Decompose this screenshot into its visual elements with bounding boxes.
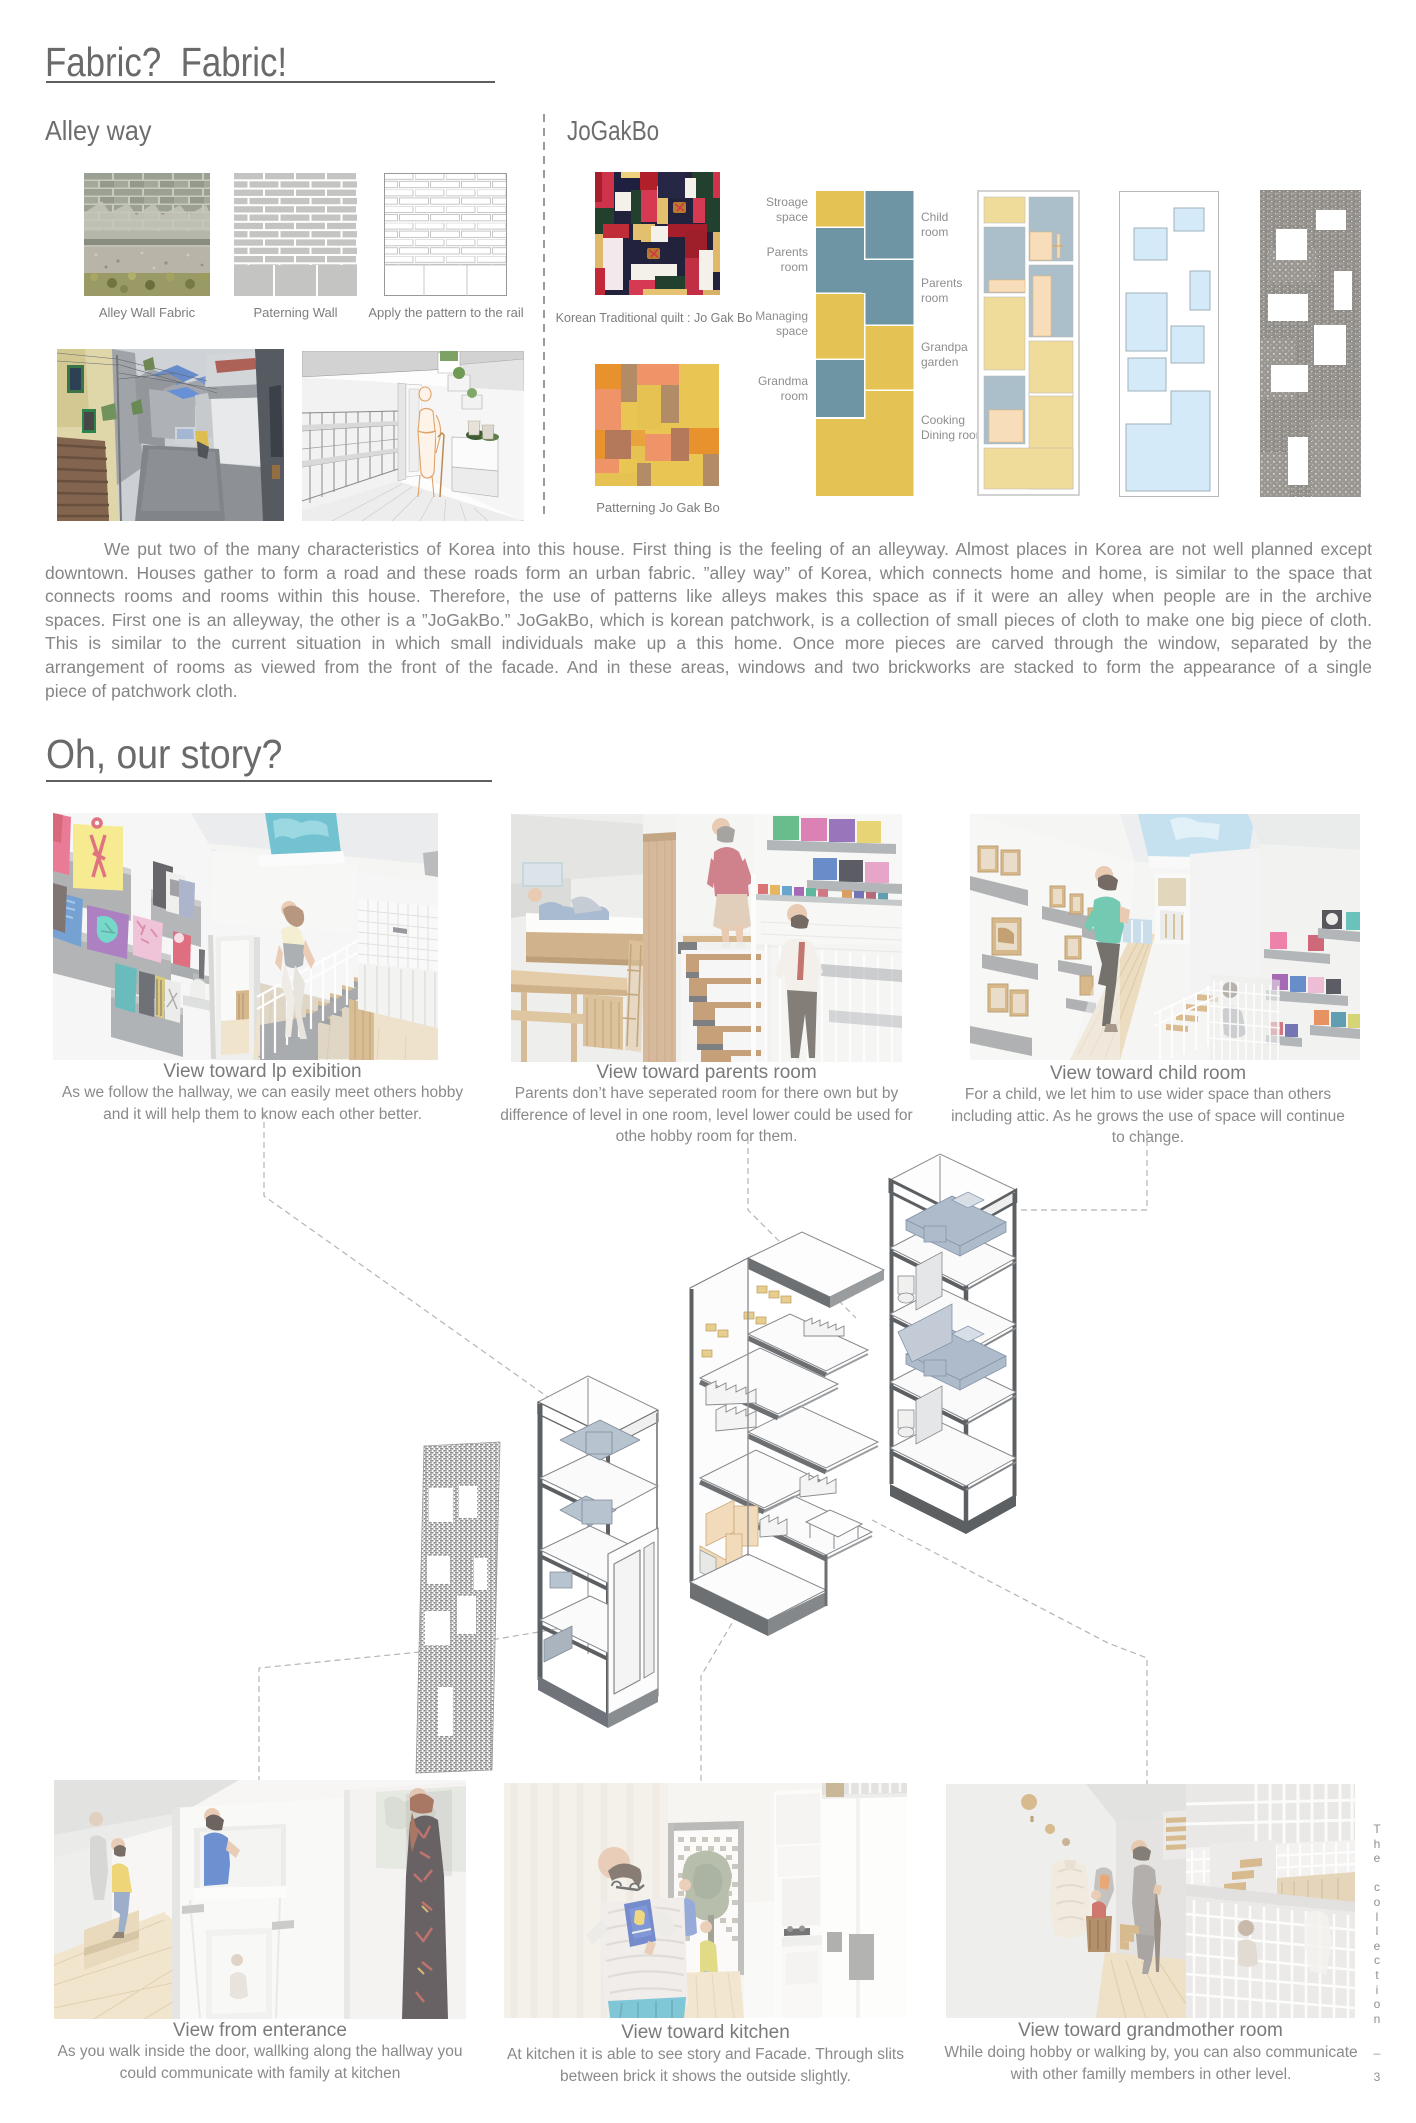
svg-text:Cooking: Cooking: [921, 413, 965, 427]
svg-text:Grandma: Grandma: [758, 374, 808, 388]
svg-text:Parents: Parents: [767, 245, 808, 259]
svg-text:room: room: [781, 260, 808, 274]
svg-text:Child: Child: [921, 210, 948, 224]
svg-text:room: room: [921, 291, 948, 305]
svg-text:Managing: Managing: [755, 309, 808, 323]
svg-text:Dining room: Dining room: [921, 428, 986, 442]
svg-text:space: space: [776, 324, 808, 338]
svg-text:garden: garden: [921, 355, 958, 369]
svg-text:room: room: [921, 225, 948, 239]
svg-text:Parents: Parents: [921, 276, 962, 290]
svg-text:Grandpa: Grandpa: [921, 340, 968, 354]
svg-text:room: room: [781, 389, 808, 403]
svg-text:space: space: [776, 210, 808, 224]
svg-text:Stroage: Stroage: [766, 195, 808, 209]
